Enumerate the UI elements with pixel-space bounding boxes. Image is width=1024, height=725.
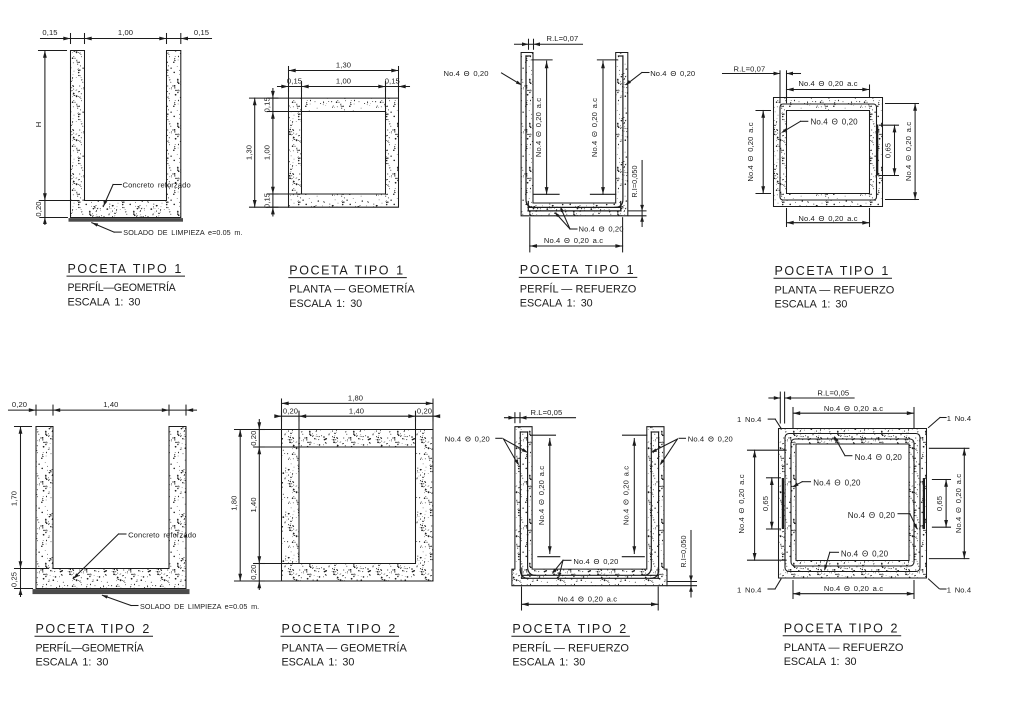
svg-text:1 No.4: 1 No.4: [737, 586, 761, 595]
svg-text:R.L=0,07: R.L=0,07: [547, 34, 579, 43]
svg-text:Concreto reforzado: Concreto reforzado: [128, 531, 196, 540]
svg-text:No.4 Θ 0,20: No.4 Θ 0,20: [841, 549, 889, 558]
svg-text:ESCALA 1: 30: ESCALA 1: 30: [36, 657, 109, 669]
svg-text:0,20: 0,20: [34, 201, 43, 216]
svg-text:No.4 Θ 0,20 a.c: No.4 Θ 0,20 a.c: [824, 404, 883, 413]
svg-text:1,80: 1,80: [348, 394, 363, 403]
svg-text:No.4 Θ 0,20 a.c: No.4 Θ 0,20 a.c: [904, 122, 913, 181]
svg-text:POCETA TIPO 1: POCETA TIPO 1: [775, 264, 890, 278]
svg-text:No.4 Θ 0,20: No.4 Θ 0,20: [573, 557, 618, 566]
svg-text:0,15: 0,15: [42, 28, 57, 37]
svg-text:ESCALA 1: 30: ESCALA 1: 30: [520, 298, 593, 310]
svg-text:0,20: 0,20: [283, 406, 298, 415]
svg-text:No.4 Θ 0,20 a.c: No.4 Θ 0,20 a.c: [737, 474, 746, 533]
svg-text:0,15: 0,15: [287, 77, 302, 86]
svg-text:POCETA TIPO 2: POCETA TIPO 2: [282, 622, 397, 636]
svg-text:1,30: 1,30: [245, 145, 254, 160]
svg-text:1,30: 1,30: [336, 61, 351, 70]
svg-text:SOLADO DE LIMPIEZA e=0.05 m.: SOLADO DE LIMPIEZA e=0.05 m.: [123, 228, 242, 237]
svg-text:PLANTA — REFUERZO: PLANTA — REFUERZO: [775, 284, 895, 296]
svg-text:No.4 Θ 0,20 a.c: No.4 Θ 0,20 a.c: [558, 595, 617, 604]
svg-text:0,15: 0,15: [263, 97, 272, 112]
svg-text:Concreto reforzado: Concreto reforzado: [123, 181, 191, 190]
svg-text:1 No.4: 1 No.4: [947, 586, 971, 595]
svg-text:PLANTA — REFUERZO: PLANTA — REFUERZO: [784, 642, 904, 654]
svg-text:POCETA TIPO 2: POCETA TIPO 2: [512, 622, 627, 636]
svg-text:No.4 Θ 0,20: No.4 Θ 0,20: [811, 117, 859, 126]
svg-text:POCETA TIPO 1: POCETA TIPO 1: [68, 262, 183, 276]
svg-text:1,00: 1,00: [263, 145, 272, 160]
svg-text:0,65: 0,65: [761, 496, 770, 511]
svg-text:R.I=0,050: R.I=0,050: [679, 535, 688, 567]
svg-text:PLANTA — GEOMETRÍA: PLANTA — GEOMETRÍA: [282, 641, 408, 654]
svg-text:1,00: 1,00: [336, 77, 351, 86]
svg-text:POCETA TIPO 2: POCETA TIPO 2: [784, 621, 899, 635]
svg-text:R.L=0,05: R.L=0,05: [531, 408, 563, 417]
svg-text:0,65: 0,65: [935, 496, 944, 511]
svg-text:PERFÍL—GEOMETRÍA: PERFÍL—GEOMETRÍA: [68, 281, 177, 294]
svg-text:ESCALA 1: 30: ESCALA 1: 30: [512, 657, 585, 669]
svg-text:PERFÍL — REFUERZO: PERFÍL — REFUERZO: [512, 641, 629, 654]
svg-text:No.4 Θ 0,20: No.4 Θ 0,20: [445, 434, 490, 443]
svg-text:No.4 Θ 0,20: No.4 Θ 0,20: [848, 511, 896, 520]
svg-text:1,80: 1,80: [230, 496, 239, 511]
svg-text:ESCALA 1: 30: ESCALA 1: 30: [68, 296, 141, 308]
svg-text:No.4 Θ 0,20 a.c: No.4 Θ 0,20 a.c: [590, 98, 599, 157]
svg-text:ESCALA 1: 30: ESCALA 1: 30: [775, 299, 848, 311]
svg-text:No.4 Θ 0,20 a.c: No.4 Θ 0,20 a.c: [621, 466, 630, 525]
svg-text:0,15: 0,15: [385, 77, 400, 86]
svg-text:No.4 Θ 0,20 a.c: No.4 Θ 0,20 a.c: [954, 474, 963, 533]
svg-text:No.4 Θ 0,20: No.4 Θ 0,20: [813, 479, 861, 488]
svg-text:0,20: 0,20: [417, 406, 432, 415]
svg-text:1,40: 1,40: [349, 406, 364, 415]
svg-text:1,40: 1,40: [103, 400, 118, 409]
svg-text:POCETA TIPO 2: POCETA TIPO 2: [36, 622, 151, 636]
svg-text:No.4 Θ 0,20 a.c: No.4 Θ 0,20 a.c: [746, 122, 755, 181]
svg-text:No.4 Θ 0,20 a.c: No.4 Θ 0,20 a.c: [798, 214, 857, 223]
svg-text:H: H: [34, 122, 43, 128]
svg-text:No.4 Θ 0,20: No.4 Θ 0,20: [444, 69, 489, 78]
svg-text:PERFÍL—GEOMETRÍA: PERFÍL—GEOMETRÍA: [36, 641, 145, 654]
svg-text:No.4 Θ 0,20: No.4 Θ 0,20: [688, 434, 733, 443]
svg-text:0,20: 0,20: [249, 565, 258, 580]
svg-text:1,70: 1,70: [10, 491, 19, 506]
svg-text:ESCALA 1: 30: ESCALA 1: 30: [784, 656, 857, 668]
svg-text:R.L=0,07: R.L=0,07: [734, 65, 766, 74]
svg-text:No.4 Θ 0,20: No.4 Θ 0,20: [855, 453, 903, 462]
svg-text:No.4 Θ 0,20: No.4 Θ 0,20: [650, 69, 695, 78]
svg-text:R.I=0,050: R.I=0,050: [630, 165, 639, 197]
svg-text:No.4 Θ 0,20 a.c: No.4 Θ 0,20 a.c: [537, 466, 546, 525]
svg-text:SOLADO DE LIMPIEZA e=0.05 m.: SOLADO DE LIMPIEZA e=0.05 m.: [140, 602, 259, 611]
svg-text:PERFÍL — REFUERZO: PERFÍL — REFUERZO: [520, 283, 637, 296]
svg-text:R.L=0,05: R.L=0,05: [817, 389, 849, 398]
svg-text:No.4 Θ 0,20 a.c: No.4 Θ 0,20 a.c: [534, 98, 543, 157]
svg-text:0,65: 0,65: [884, 143, 893, 158]
svg-text:1,40: 1,40: [249, 497, 258, 512]
svg-text:0,15: 0,15: [194, 28, 209, 37]
svg-text:No.4 Θ 0,20 a.c: No.4 Θ 0,20 a.c: [824, 584, 883, 593]
svg-text:POCETA TIPO 1: POCETA TIPO 1: [520, 263, 635, 277]
svg-text:No.4 Θ 0,20: No.4 Θ 0,20: [579, 225, 624, 234]
svg-text:No.4 Θ 0,20 a.c: No.4 Θ 0,20 a.c: [798, 79, 857, 88]
svg-text:ESCALA 1: 30: ESCALA 1: 30: [282, 657, 355, 669]
svg-text:1 No.4: 1 No.4: [737, 415, 761, 424]
svg-text:ESCALA 1: 30: ESCALA 1: 30: [289, 298, 362, 310]
svg-text:No.4 Θ 0,20 a.c: No.4 Θ 0,20 a.c: [544, 236, 603, 245]
svg-text:POCETA TIPO 1: POCETA TIPO 1: [289, 263, 404, 277]
svg-text:0,15: 0,15: [263, 193, 272, 208]
svg-text:0,25: 0,25: [10, 572, 19, 587]
svg-text:0,20: 0,20: [249, 431, 258, 446]
svg-text:1 No.4: 1 No.4: [947, 414, 971, 423]
svg-text:0,20: 0,20: [12, 400, 27, 409]
svg-text:PLANTA — GEOMETRÍA: PLANTA — GEOMETRÍA: [289, 283, 415, 296]
svg-text:1,00: 1,00: [118, 28, 133, 37]
